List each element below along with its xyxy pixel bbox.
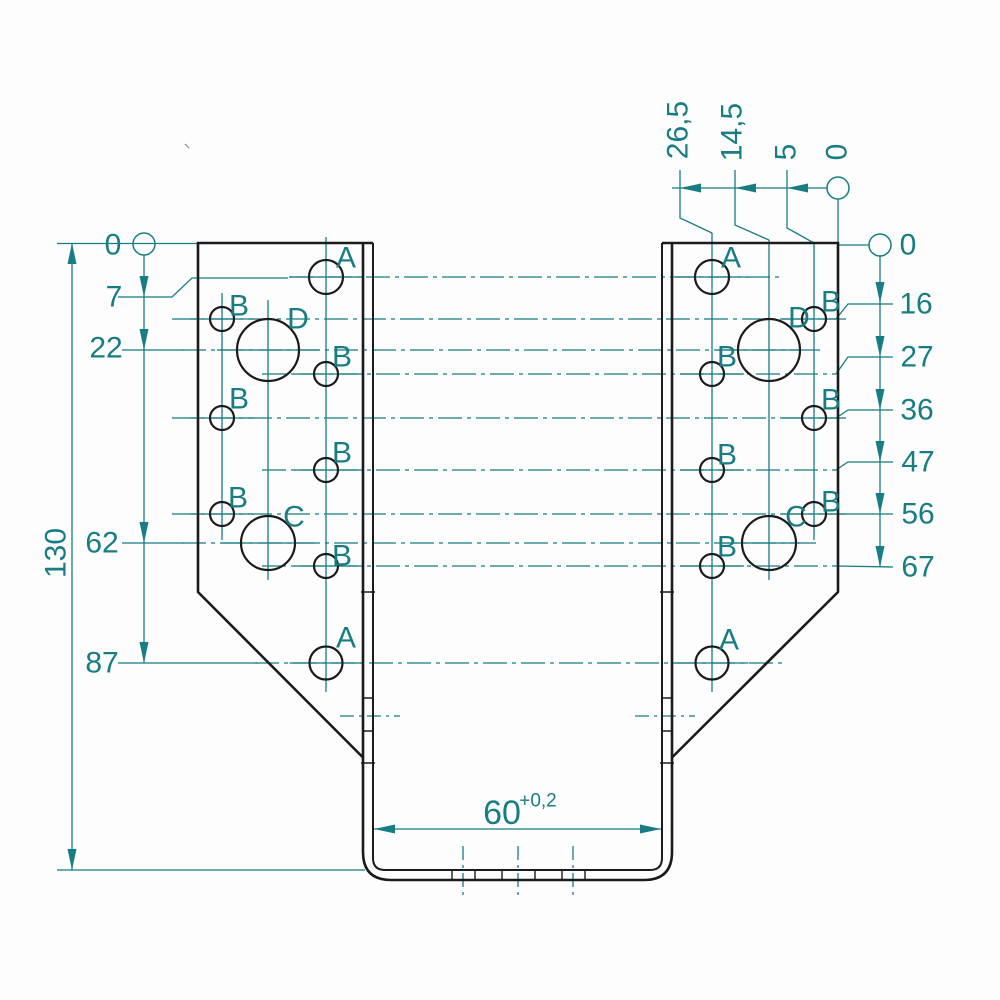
- dim-label-left-22: 22: [89, 332, 122, 365]
- dim-label-width-tol: +0,2: [519, 791, 557, 812]
- leader-36: [836, 410, 893, 418]
- arrow-right-67: [876, 546, 885, 567]
- dim-label-left-0: 0: [105, 229, 122, 262]
- arrow-right-56: [876, 493, 885, 514]
- leader-67: [836, 566, 893, 567]
- hole-label-a: A: [719, 624, 739, 657]
- hole-label-b: B: [332, 341, 352, 374]
- dim-label-right-27: 27: [900, 341, 933, 374]
- arrow-60-right: [640, 825, 661, 834]
- arrow-top-14-5: [735, 184, 756, 193]
- right-plate-outline: [662, 243, 838, 758]
- hole-label-a: A: [721, 242, 741, 275]
- arrow-right-16: [876, 282, 885, 303]
- paper-speck: [185, 144, 189, 148]
- hole-label-b: B: [821, 286, 841, 319]
- dim-label-right-56: 56: [901, 498, 934, 531]
- dim-label-top-14-5: 14,5: [716, 103, 749, 161]
- arrow-top-26-5: [680, 184, 701, 193]
- leader-47: [836, 462, 893, 470]
- hole-label-a: A: [336, 622, 356, 655]
- hole-label-b: B: [332, 540, 352, 573]
- arrow-left-87: [140, 642, 149, 663]
- dim-label-right-16: 16: [899, 288, 932, 321]
- dim-label-right-36: 36: [900, 394, 933, 427]
- hole-label-d: D: [287, 303, 309, 336]
- channel-inner-outline: [373, 243, 662, 870]
- leader-16: [836, 304, 893, 319]
- arrow-top-5: [787, 184, 808, 193]
- hole-label-c: C: [283, 501, 305, 534]
- hole-label-b: B: [717, 341, 737, 374]
- leader-top-14-5: [735, 170, 769, 240]
- arrow-60-left: [374, 825, 395, 834]
- arrow-left-62: [140, 522, 149, 543]
- hole-label-b: B: [821, 384, 841, 417]
- arrow-left-22: [140, 329, 149, 350]
- hole-label-b: B: [717, 531, 737, 564]
- hole-label-b: B: [229, 290, 249, 323]
- dim-label-width-60: 60: [483, 794, 521, 832]
- arrow-right-27: [876, 336, 885, 357]
- channel-outer-outline: [363, 243, 672, 880]
- dim-label-right-0: 0: [900, 229, 917, 262]
- arrow-left-7: [140, 276, 149, 297]
- arrow-right-36: [876, 389, 885, 410]
- hole-label-a: A: [336, 242, 356, 275]
- hole-label-b: B: [717, 439, 737, 472]
- leader-27: [836, 357, 893, 374]
- drawing-canvas: 07226287130016273647566726,514,55060+0,2…: [0, 0, 1000, 1000]
- dim-label-height-130: 130: [40, 528, 73, 578]
- dim-label-right-47: 47: [901, 446, 934, 479]
- dim-label-left-7: 7: [106, 281, 123, 314]
- hole-label-b: B: [821, 486, 841, 519]
- datum-circle-top: [827, 177, 849, 199]
- dim-label-left-62: 62: [85, 527, 118, 560]
- dim-label-left-87: 87: [85, 647, 118, 680]
- leader-top-5: [787, 170, 814, 243]
- leader-top-26-5: [680, 170, 712, 233]
- hole-label-b: B: [332, 437, 352, 470]
- hole-label-b: B: [228, 482, 248, 515]
- arrow-right-47: [876, 441, 885, 462]
- dim-label-top-26-5: 26,5: [662, 101, 695, 159]
- hole-label-b: B: [229, 383, 249, 416]
- datum-circle-right: [869, 234, 891, 256]
- hole-label-d: D: [788, 302, 810, 335]
- dim-label-top-5: 5: [770, 144, 803, 161]
- dim-label-right-67: 67: [901, 551, 934, 584]
- hole-label-c: C: [785, 501, 807, 534]
- arrow-130-top: [68, 243, 77, 264]
- dim-label-top-0: 0: [821, 144, 854, 161]
- arrow-130-bottom: [68, 849, 77, 870]
- technical-drawing: 07226287130016273647566726,514,55060+0,2…: [0, 0, 1000, 1000]
